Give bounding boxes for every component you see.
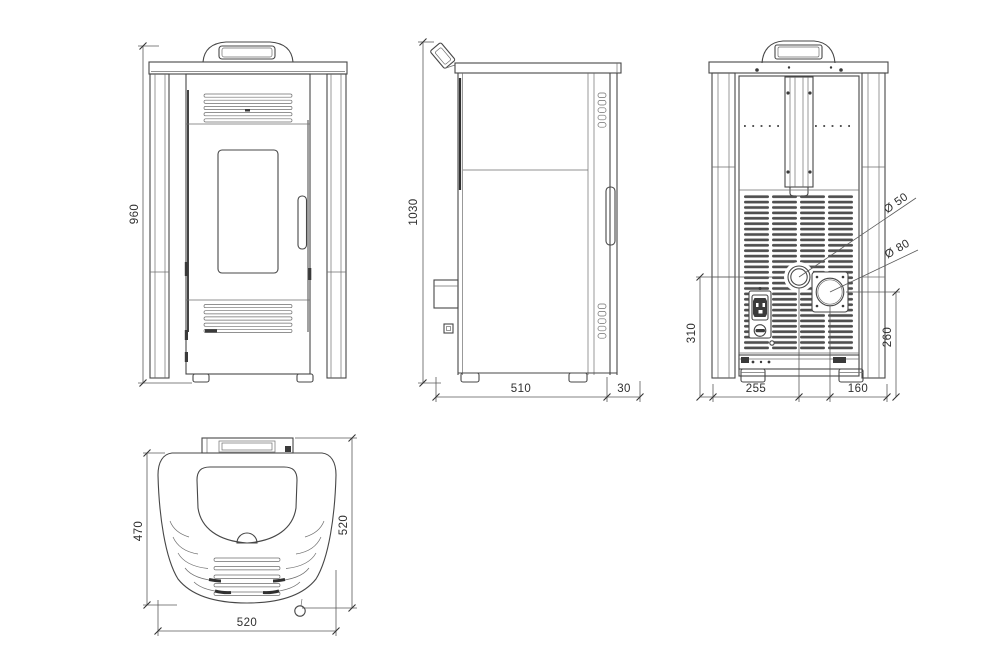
right-pillar bbox=[327, 74, 346, 378]
top-center-slats bbox=[214, 558, 280, 595]
dim-top-total-depth: 520 bbox=[295, 435, 357, 612]
rear-handle bbox=[762, 41, 835, 63]
side-vent-slots-top bbox=[598, 93, 606, 127]
side-vent-slots-bottom bbox=[598, 304, 606, 338]
dim-label-520-right: 520 bbox=[338, 515, 350, 535]
control-panel bbox=[203, 42, 293, 62]
lid-handle bbox=[237, 533, 257, 543]
dim-label-d50: Ø 50 bbox=[882, 191, 911, 216]
dim-label-160: 160 bbox=[848, 383, 868, 395]
tilted-display-panel bbox=[430, 42, 456, 69]
top-left-slats bbox=[170, 521, 231, 593]
dim-label-470: 470 bbox=[133, 521, 145, 541]
top-plate bbox=[149, 62, 347, 74]
foot bbox=[569, 373, 587, 382]
top-plate-rear bbox=[709, 62, 888, 73]
dim-label-1030: 1030 bbox=[408, 198, 420, 225]
dim-label-30: 30 bbox=[617, 383, 631, 395]
dim-label-520-bottom: 520 bbox=[237, 617, 257, 629]
left-pillar bbox=[150, 74, 169, 378]
rear-flue-box bbox=[434, 280, 458, 333]
rear-left-pillar bbox=[712, 73, 735, 378]
side-view: 1030 510 30 bbox=[408, 39, 644, 403]
foot bbox=[461, 373, 479, 382]
front-view: 960 bbox=[129, 42, 347, 387]
pellet-channel-cover bbox=[785, 77, 813, 196]
top-vent-grille bbox=[204, 94, 292, 122]
dim-top-body-depth: 470 bbox=[133, 450, 177, 609]
drawing-canvas: 960 bbox=[0, 0, 1000, 667]
dim-label-310: 310 bbox=[686, 323, 698, 343]
glass-door-window bbox=[218, 150, 278, 273]
dim-label-d80: Ø 80 bbox=[883, 238, 912, 262]
technical-drawing: 960 bbox=[0, 0, 1000, 667]
top-plate-side bbox=[455, 63, 621, 73]
dim-side-depth: 510 30 bbox=[433, 377, 644, 402]
top-body-outline bbox=[158, 453, 336, 603]
dim-label-255: 255 bbox=[746, 383, 766, 395]
foot bbox=[297, 374, 313, 382]
dim-label-960: 960 bbox=[129, 204, 141, 224]
top-view: 470 520 520 bbox=[133, 435, 357, 637]
door-knob bbox=[295, 606, 305, 616]
hopper-lid bbox=[197, 467, 297, 543]
rear-view: Ø 50 Ø 80 310 260 255 bbox=[686, 41, 918, 402]
dim-side-height: 1030 bbox=[408, 39, 441, 387]
dim-front-height: 960 bbox=[129, 43, 192, 387]
power-inlet-module bbox=[749, 287, 771, 338]
top-control-panel bbox=[202, 438, 293, 453]
dim-label-510: 510 bbox=[511, 383, 531, 395]
dim-label-260: 260 bbox=[882, 327, 894, 347]
door-handle bbox=[298, 196, 307, 249]
lower-vent-grille bbox=[204, 305, 292, 333]
top-right-slats bbox=[263, 521, 324, 593]
foot bbox=[193, 374, 209, 382]
